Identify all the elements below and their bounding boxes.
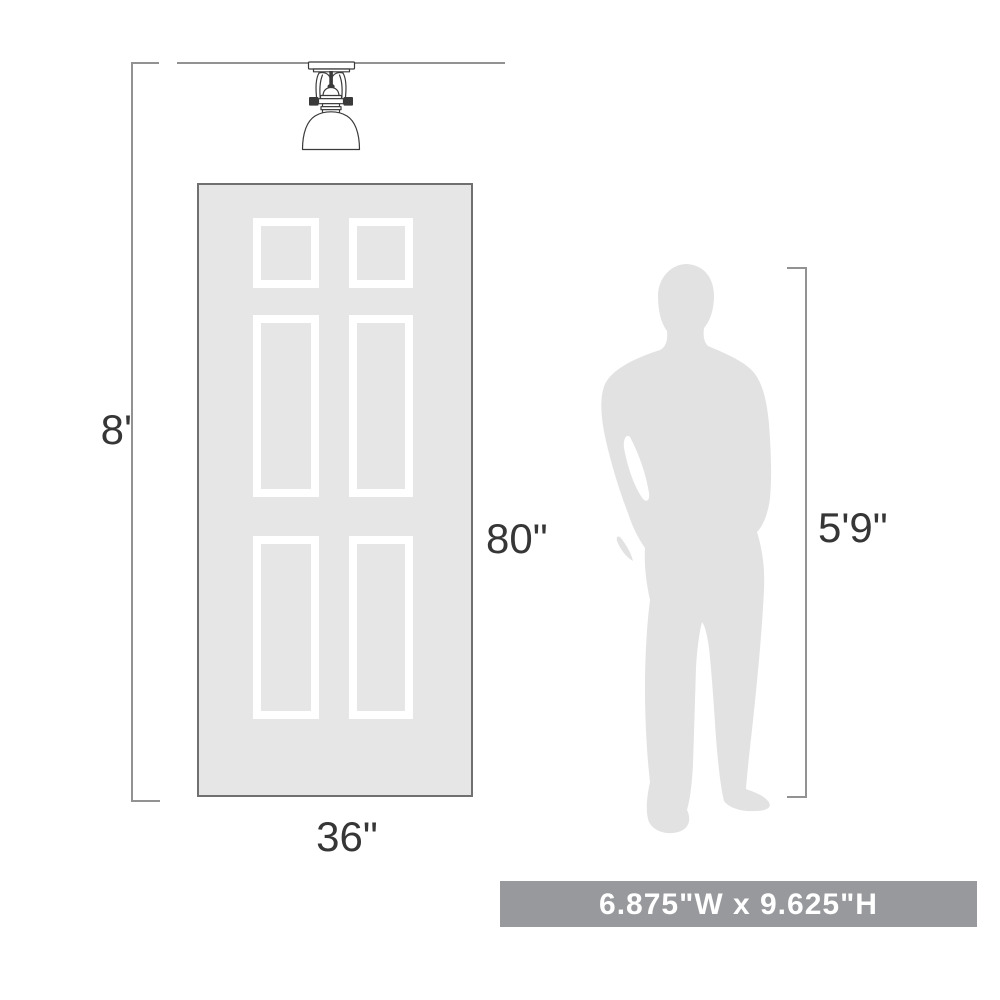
door-panel — [253, 315, 319, 497]
semi-flush-ceiling-light-icon — [288, 54, 374, 154]
door-panel — [253, 536, 319, 719]
person-height-label: 5'9" — [818, 507, 888, 549]
door-panel — [349, 536, 413, 719]
ceiling-dim-bottom-tick — [131, 800, 160, 802]
person-dim-top-tick — [787, 267, 807, 269]
door-width-label: 36" — [297, 816, 397, 858]
door-panel — [349, 218, 413, 288]
person-dim-bottom-tick — [787, 796, 807, 798]
dimension-diagram: 8' 80" 36" 5'9" — [0, 0, 1000, 1000]
male-silhouette-illustration — [585, 258, 780, 838]
door-panel — [253, 218, 319, 288]
fixture-size-banner: 6.875"W x 9.625"H — [500, 881, 977, 927]
six-panel-door-illustration — [197, 183, 473, 797]
door-height-label: 80" — [486, 518, 548, 560]
ceiling-height-label: 8' — [62, 409, 132, 451]
person-dim-vertical-line — [805, 267, 807, 798]
door-panel — [349, 315, 413, 497]
ceiling-dim-top-tick — [131, 62, 159, 64]
